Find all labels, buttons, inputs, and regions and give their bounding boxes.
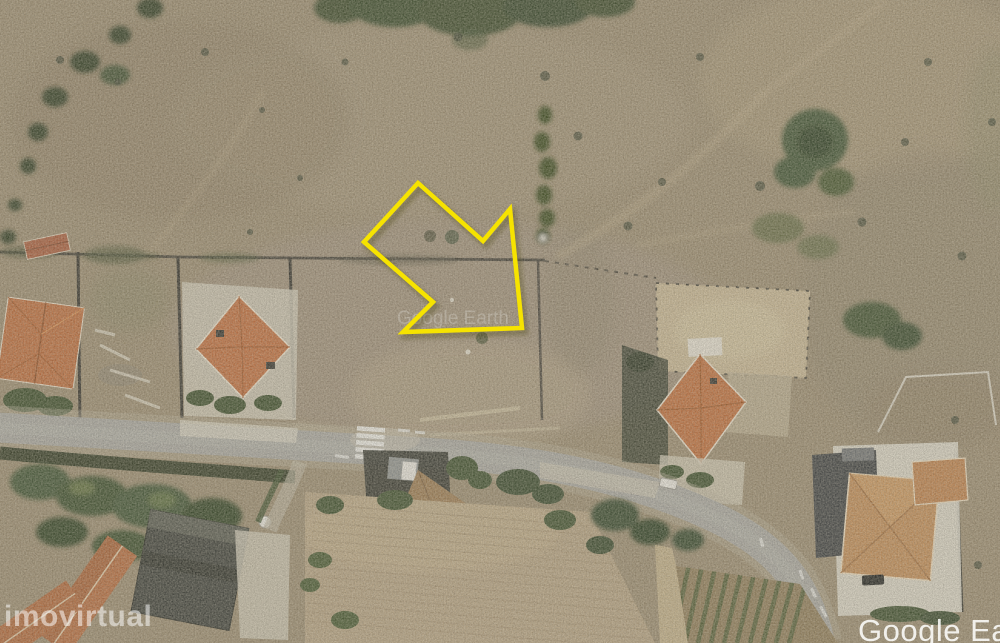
- imovirtual-watermark: imovirtual: [4, 600, 152, 633]
- aerial-photo: Google Earth imovirtual Google Ea: [0, 0, 1000, 643]
- google-earth-logo: Google Ea: [858, 613, 1000, 643]
- satellite-image: Google Earth imovirtual Google Ea: [0, 0, 1000, 643]
